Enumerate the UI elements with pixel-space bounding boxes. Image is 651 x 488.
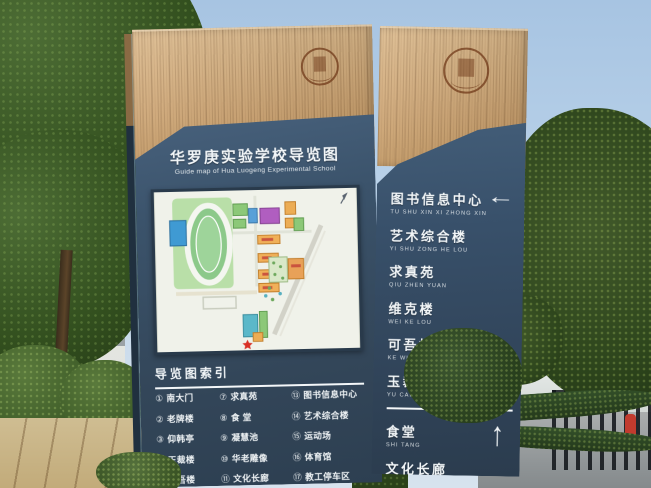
index-number: ⑨ (220, 433, 228, 443)
index-label: 仰韩亭 (167, 434, 194, 445)
direction-item: 图书信息中心TU SHU XIN XI ZHONG XIN← (390, 188, 516, 217)
destination-pinyin: TU SHU XIN XI ZHONG XIN (390, 209, 516, 217)
index-item: ⑯体育馆 (293, 449, 367, 463)
index-item: ⑭艺术综合楼 (292, 408, 366, 422)
index-column: ⑬图书信息中心⑭艺术综合楼⑮运动场⑯体育馆⑰教工停车区⑱家长停车区 (291, 388, 368, 488)
destination-pinyin: WEI KE LOU (388, 319, 514, 327)
index-item: ⑦求真苑 (219, 389, 291, 403)
seal-arc (308, 69, 333, 82)
index-label: 图书信息中心 (303, 389, 357, 400)
destination-name: 艺术综合楼 (390, 225, 516, 246)
index-number: ⑬ (291, 390, 300, 400)
index-item: ⑰教工停车区 (293, 470, 367, 484)
direction-item: 艺术综合楼YI SHU ZONG HE LOU (390, 225, 516, 254)
index-number: ② (156, 414, 164, 424)
index-label: 教工停车区 (305, 471, 350, 482)
direction-item: 食堂SHI TANG↑ (386, 421, 512, 450)
index-label: 文化长廊 (233, 473, 269, 484)
destination-name: 求真苑 (389, 261, 515, 282)
index-label: 食 堂 (231, 412, 252, 422)
index-grid: ①南大门②老牌楼③仰韩亭④玉裁楼⑤可吾楼⑥维克楼⑦求真苑⑧食 堂⑨凝慧池⑩华老雕… (155, 388, 368, 488)
index-item: ⑧食 堂 (220, 410, 292, 424)
index-number: ⑧ (220, 412, 228, 422)
index-label: 体育馆 (305, 451, 332, 462)
index-label: 凝慧池 (231, 432, 258, 443)
index-item: ③仰韩亭 (156, 432, 220, 445)
index-number: ① (155, 393, 163, 403)
index-item: ⑮运动场 (292, 429, 366, 443)
campus-map-board (151, 185, 364, 356)
direction-item: 维克楼WEI KE LOU (388, 298, 514, 327)
index-label: 华老雕像 (232, 452, 268, 463)
index-number: ⑭ (292, 411, 301, 421)
seal-arc (451, 74, 482, 90)
index-item: ⑨凝慧池 (220, 430, 292, 444)
index-number: ⑰ (293, 472, 302, 482)
foreground-pine-branch (404, 328, 522, 423)
index-item: ⑪文化长廊 (221, 471, 293, 485)
index-label: 艺术综合楼 (304, 410, 349, 421)
index-number: ⑮ (292, 431, 301, 441)
index-item: ⑬图书信息中心 (291, 388, 365, 402)
index-number: ⑯ (293, 452, 302, 462)
arrow-up-icon: ↑ (490, 415, 504, 454)
index-item: ②老牌楼 (156, 411, 220, 424)
guide-map-sign: 华罗庚实验学校导览图 Guide map of Hua Luogeng Expe… (124, 24, 382, 488)
index-number: ⑪ (221, 474, 230, 484)
index-number: ⑦ (219, 392, 227, 402)
direction-item: 求真苑QIU ZHEN YUAN (389, 261, 515, 290)
index-number: ③ (156, 434, 164, 444)
index-number: ⑩ (221, 453, 229, 463)
index-label: 运动场 (304, 430, 331, 441)
index-item: ①南大门 (155, 391, 219, 404)
campus-map-graphic (154, 188, 361, 353)
arrow-left-icon: ← (486, 185, 515, 210)
index-heading: 导览图索引 (155, 361, 364, 390)
photo-scene: 华罗庚实验学校导览图 Guide map of Hua Luogeng Expe… (0, 0, 651, 488)
index-label: 老牌楼 (167, 413, 194, 424)
destination-pinyin: YI SHU ZONG HE LOU (390, 246, 516, 254)
index-label: 南大门 (166, 393, 193, 404)
index-label: 求真苑 (230, 391, 257, 402)
index-item: ⑩华老雕像 (221, 451, 293, 465)
destination-name: 维克楼 (388, 298, 514, 319)
index-column: ⑦求真苑⑧食 堂⑨凝慧池⑩华老雕像⑪文化长廊⑫文庙遗址 (219, 389, 294, 488)
sign-panel: 华罗庚实验学校导览图 Guide map of Hua Luogeng Expe… (133, 90, 382, 487)
foreground-bush (96, 452, 181, 488)
destination-pinyin: QIU ZHEN YUAN (389, 282, 515, 290)
